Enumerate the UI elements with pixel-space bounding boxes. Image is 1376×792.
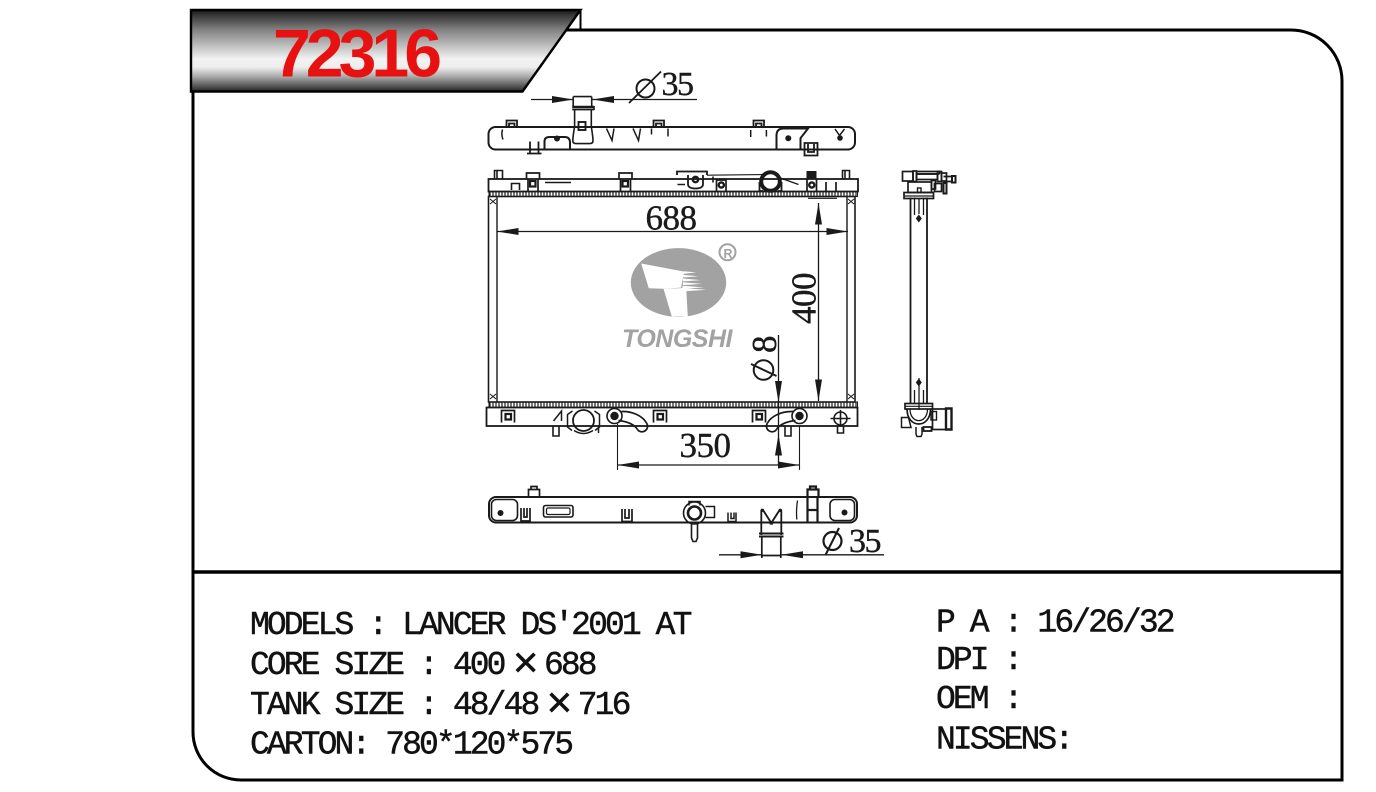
svg-text:DPI :: DPI : [936,642,1021,679]
svg-text:OEM :: OEM : [936,681,1021,718]
svg-text:MODELS : LANCER DS'2001 AT: MODELS : LANCER DS'2001 AT [250,607,692,644]
svg-text:CORE SIZE : 400 ×688: CORE SIZE : 400 ×688 [250,641,596,691]
svg-text:72316: 72316 [273,16,440,92]
svg-text:TANK SIZE : 48/48 ×716: TANK SIZE : 48/48 ×716 [250,681,630,731]
svg-text:350: 350 [680,426,731,465]
svg-text:35: 35 [662,66,694,103]
svg-text:400: 400 [785,273,824,324]
svg-text:TONGSHI: TONGSHI [622,325,733,353]
svg-text:CARTON: 780*120*575: CARTON: 780*120*575 [250,727,572,764]
svg-text:P A : 16/26/32: P A : 16/26/32 [936,605,1174,642]
svg-text:NISSENS:: NISSENS: [936,722,1071,759]
svg-text:35: 35 [849,523,881,560]
svg-text:8: 8 [745,336,784,353]
svg-text:R: R [723,247,732,261]
